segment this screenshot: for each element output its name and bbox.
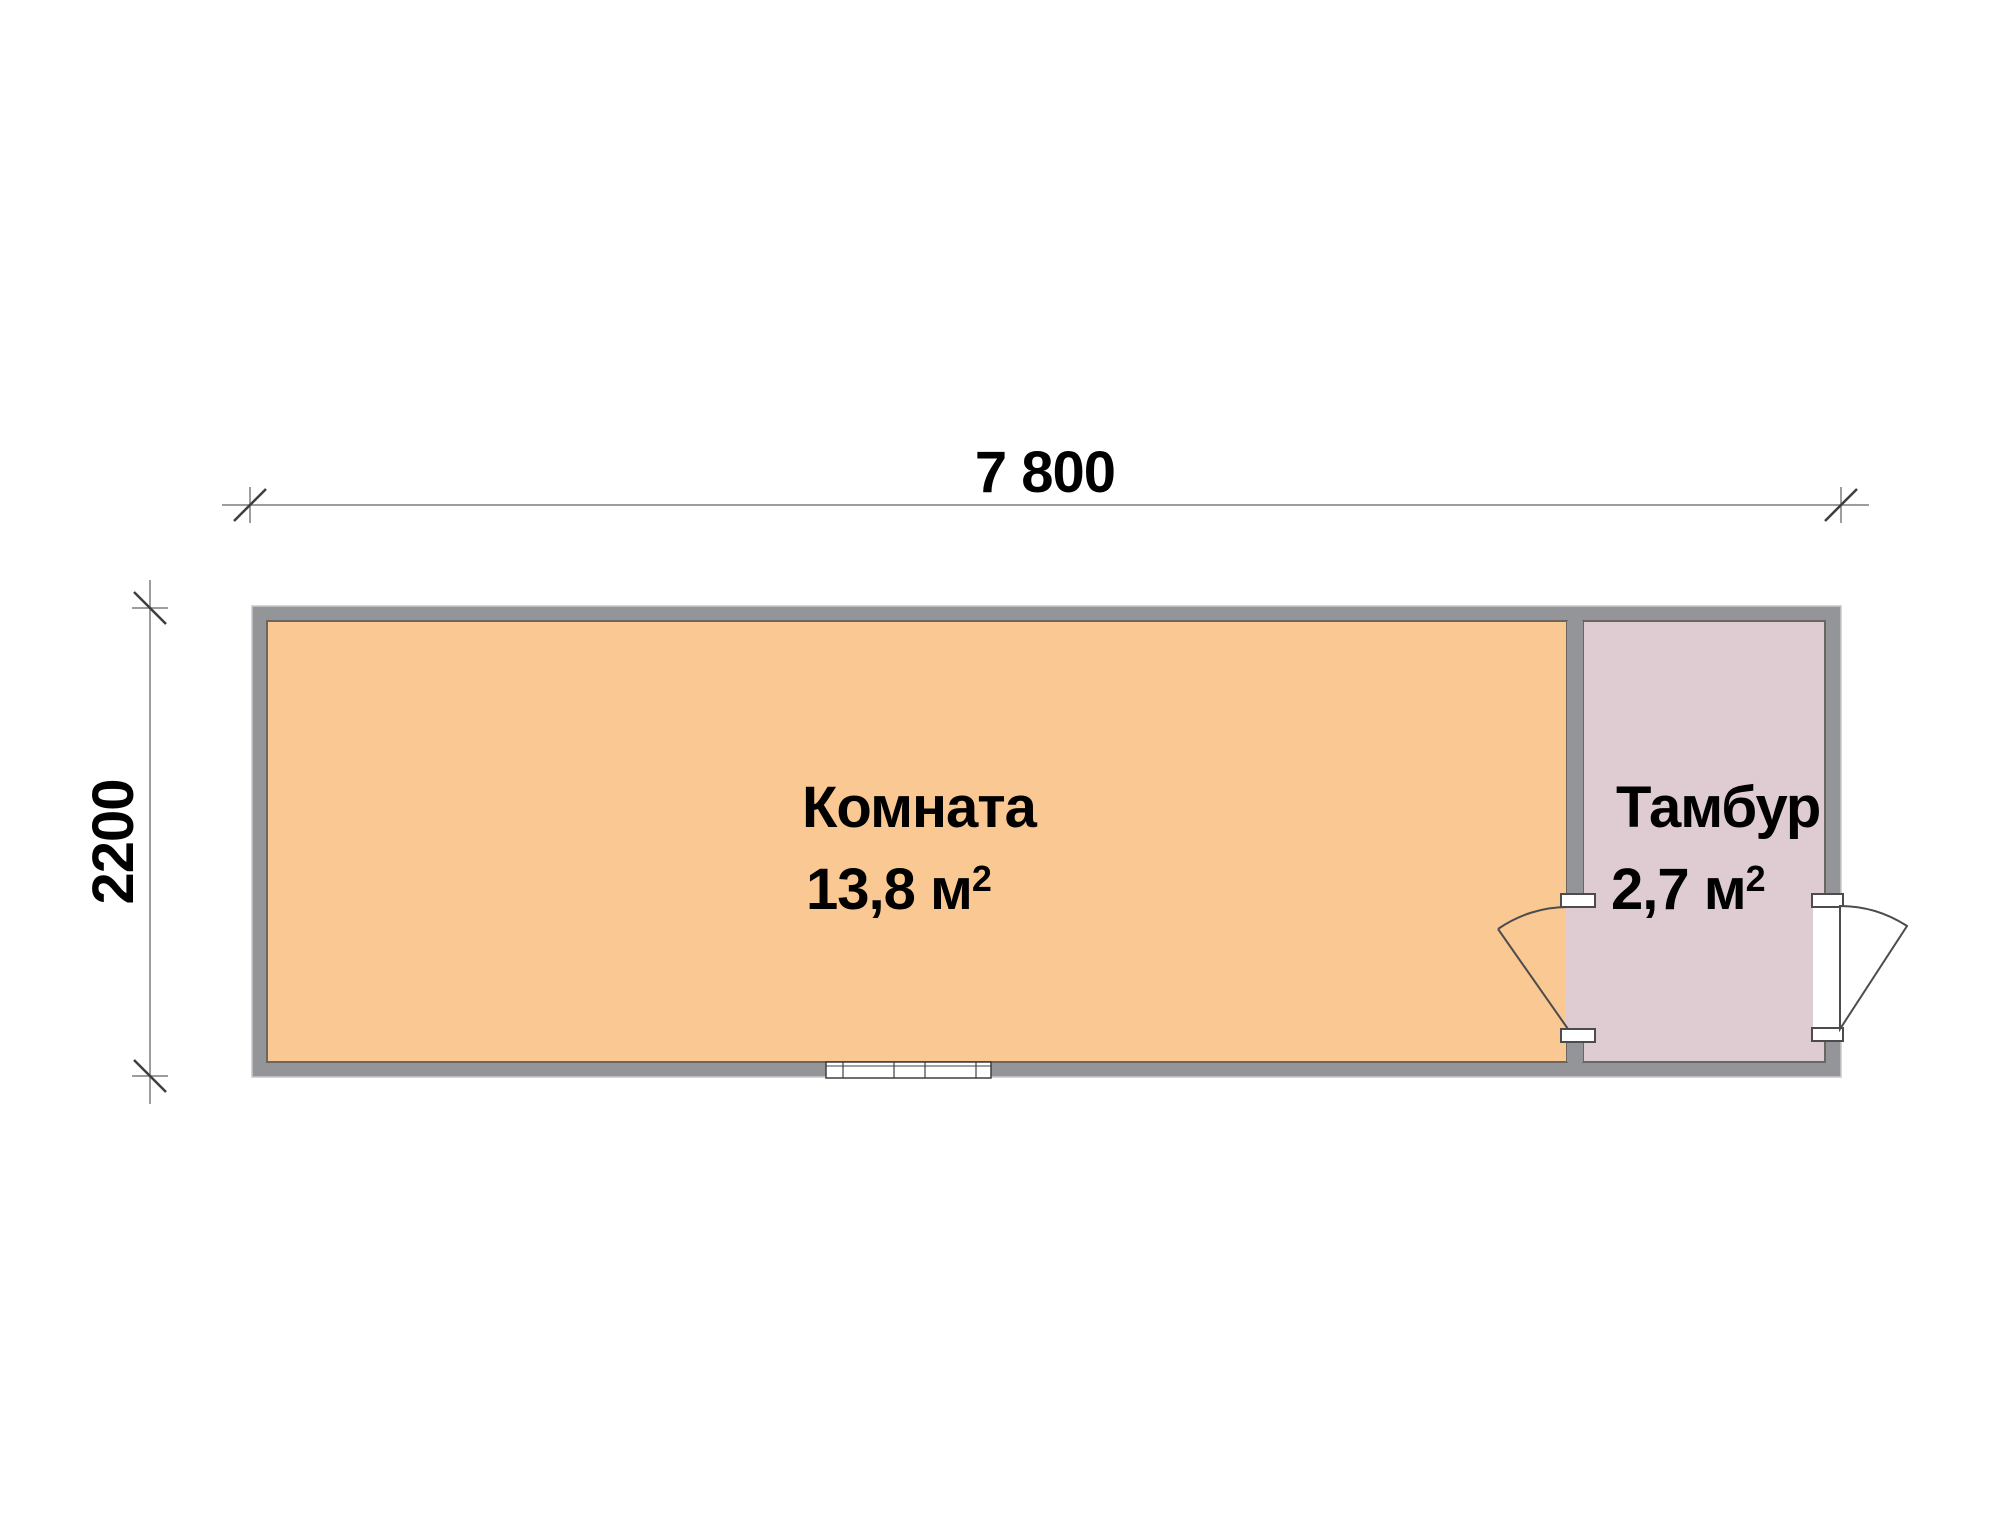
window-icon (826, 1062, 991, 1078)
room-komnata-area-value: 13,8 м (806, 857, 972, 922)
exterior-door-jamb-top (1812, 894, 1843, 907)
dimension-width-label: 7 800 (975, 444, 1115, 502)
room-tambur-area: 2,7 м2 (1611, 861, 1766, 919)
room-tambur-name: Тамбур (1616, 779, 1820, 837)
exterior-door-jamb-bottom (1812, 1028, 1843, 1041)
partition-door-opening (1565, 907, 1585, 1029)
room-komnata-area: 13,8 м2 (806, 861, 992, 919)
partition-door-jamb-top (1561, 894, 1595, 907)
room-tambur-area-sup: 2 (1746, 858, 1766, 899)
window-frame (826, 1062, 991, 1078)
dimension-height-label: 2200 (85, 779, 143, 904)
exterior-door-opening (1813, 907, 1843, 1028)
room-komnata-name: Комната (802, 779, 1036, 837)
room-komnata-area-sup: 2 (972, 858, 992, 899)
building (252, 606, 1843, 1077)
floor-plan-page: 7 800 2200 Комната 13,8 м2 Тамбур 2,7 м2 (0, 0, 2000, 1539)
exterior-door-swing-icon (1840, 906, 1907, 1029)
room-tambur-floor (1583, 621, 1825, 1062)
room-komnata-floor (267, 621, 1567, 1062)
partition-door-jamb-bottom (1561, 1029, 1595, 1042)
floor-plan-drawing (0, 0, 2000, 1539)
room-tambur-area-value: 2,7 м (1611, 857, 1746, 922)
